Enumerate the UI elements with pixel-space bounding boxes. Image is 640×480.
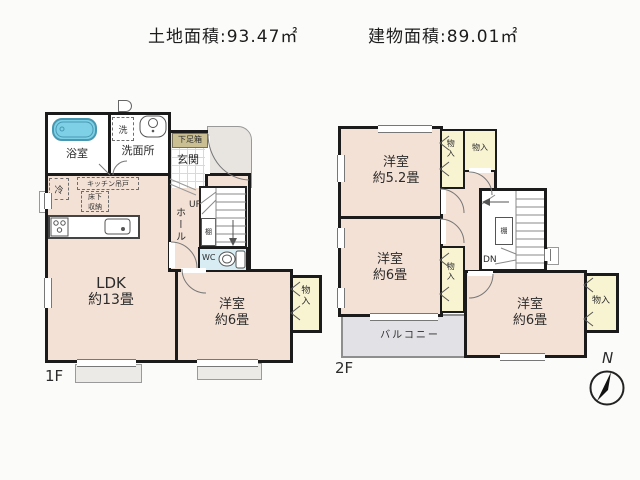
shoe-cabinet-tag: 下足箱 bbox=[172, 133, 208, 148]
bedroom6r-label-line1: 洋室 bbox=[500, 298, 560, 313]
bedroom6r-bottom-window bbox=[500, 353, 545, 361]
washroom-window-flap bbox=[118, 100, 132, 112]
closet-a-label: 物入 bbox=[446, 139, 455, 179]
closet-d-label: 物入 bbox=[586, 296, 616, 306]
bedroom-door-opening bbox=[181, 268, 206, 273]
washer-label: 洗 bbox=[118, 123, 127, 136]
ldk-left-window bbox=[44, 278, 52, 308]
floor2-label: 2F bbox=[335, 360, 353, 377]
land-area-text: 土地面積:93.47㎡ bbox=[148, 22, 298, 47]
left-window-1 bbox=[337, 155, 345, 182]
closet-1f-label: 物入 bbox=[299, 285, 309, 325]
hall-label: ホール bbox=[173, 207, 185, 251]
bedroom6l-label-line1: 洋室 bbox=[360, 253, 420, 268]
washroom-label: 洗面所 bbox=[107, 145, 169, 158]
stairs-right-window bbox=[544, 249, 551, 261]
up-label: UP bbox=[189, 200, 201, 210]
fridge-label: 冷 bbox=[54, 183, 63, 196]
shelf-label-2f: 棚 bbox=[501, 226, 508, 236]
shelf-label-1f: 棚 bbox=[205, 227, 212, 237]
entrance-label: 玄関 bbox=[167, 154, 209, 167]
bedroom-1f-label-line2: 約6畳 bbox=[198, 314, 266, 329]
bedroom6r-door-opening bbox=[468, 271, 493, 276]
shelf-box-2f: 棚 bbox=[495, 217, 513, 245]
closet-b-door-opening bbox=[469, 168, 491, 173]
room-ldk bbox=[45, 173, 178, 363]
bedroom-bottom-window bbox=[197, 359, 258, 367]
bedroom52-label-line1: 洋室 bbox=[366, 156, 426, 171]
kitchen-counter bbox=[48, 215, 140, 239]
bedroom6l-door-opening bbox=[441, 219, 446, 244]
bathtub bbox=[52, 118, 97, 141]
shelf-box-1f: 棚 bbox=[201, 218, 216, 246]
building-area-text: 建物面積:89.01㎡ bbox=[368, 22, 518, 47]
wc-label: WC bbox=[202, 253, 216, 262]
bedroom52-label-line2: 約5.2畳 bbox=[356, 172, 436, 187]
left-window-2 bbox=[337, 228, 345, 248]
left-window-3 bbox=[337, 288, 345, 308]
bedroom6l-bottom-window bbox=[370, 313, 438, 321]
fridge-box: 冷 bbox=[49, 178, 69, 200]
ldk-bottom-window bbox=[77, 359, 136, 367]
underfloor-storage-line2: 収納 bbox=[88, 202, 102, 212]
balcony-label: バルコニー bbox=[357, 330, 463, 342]
washer-box: 洗 bbox=[112, 117, 134, 141]
floorplan-page: { "header": { "land_area": "土地面積:93.47㎡"… bbox=[0, 0, 640, 480]
dn-label: DN bbox=[483, 255, 497, 265]
floor1-label: 1F bbox=[45, 368, 63, 385]
ldk-label-line2: 約13畳 bbox=[61, 292, 161, 308]
closet-c-label: 物入 bbox=[446, 262, 455, 302]
bedroom52-door-opening bbox=[441, 189, 446, 214]
kitchen-cupboard-box: キッチン吊戸 bbox=[77, 177, 139, 190]
closet-b-label: 物入 bbox=[465, 143, 495, 152]
bedroom-1f-label-line1: 洋室 bbox=[202, 298, 262, 313]
floor1-plan: 棚 洗 冷 キッチン吊戸 床下 収納 下足箱 浴室 洗面所 玄関 UP ホール … bbox=[43, 108, 328, 390]
kitchen-left-window bbox=[44, 193, 52, 209]
compass-icon bbox=[585, 362, 631, 410]
underfloor-storage-box: 床下 収納 bbox=[81, 191, 109, 212]
bedroom6l-label-line2: 約6畳 bbox=[355, 269, 425, 284]
floor2-plan: 棚 洋室 約5.2畳 物入 物入 DN 洋室 約6畳 物入 バルコニー 洋室 約… bbox=[333, 112, 625, 382]
ldk-label-line1: LDK bbox=[71, 275, 151, 292]
bedroom52-top-window bbox=[378, 125, 432, 133]
bedroom6r-label-line2: 約6畳 bbox=[495, 314, 565, 329]
bathroom-label: 浴室 bbox=[51, 148, 103, 161]
underfloor-storage-line1: 床下 bbox=[88, 192, 102, 202]
kitchen-cupboard-label: キッチン吊戸 bbox=[87, 179, 129, 189]
